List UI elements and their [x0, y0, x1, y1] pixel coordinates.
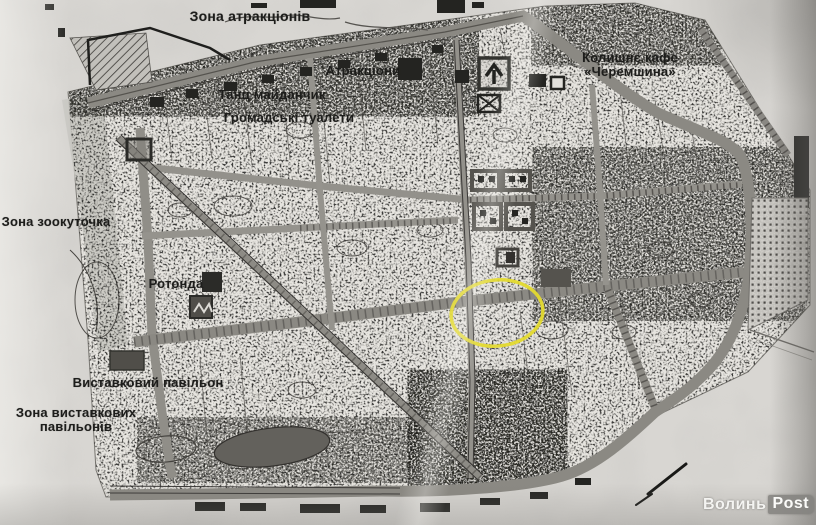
label-rotunda: Ротонда	[149, 277, 204, 291]
label-dance-floor: Танц майданчик	[218, 88, 325, 102]
watermark-text-volyn: Волинь	[703, 496, 768, 514]
label-former-cafe-cheremshyna: Колишнє кафе «Черемшина»	[537, 51, 723, 79]
volynpost-watermark: Волинь Post	[703, 495, 814, 514]
label-public-toilets: Громадські туалети	[224, 111, 354, 125]
watermark-badge-post: Post	[768, 495, 814, 514]
street-buildings-bar	[794, 136, 809, 208]
label-exhibition-pavilion: Виставковий павільон	[73, 376, 224, 390]
junction-structure	[127, 139, 151, 160]
label-zoo-zone: Зона зоокуточка	[2, 215, 111, 229]
label-attractions: Атракціони	[326, 64, 401, 78]
exhibition-pavilion-building	[110, 351, 144, 370]
dark-structure	[541, 269, 571, 287]
attractions-building	[398, 58, 422, 80]
entrance-arrow-icon	[479, 58, 509, 89]
label-exhibition-zone: Зона виставкових павільонів	[16, 406, 136, 434]
label-zone-attractions: Зона атракціонів	[190, 9, 311, 23]
scanned-map-page: Зона атракціонів Атракціони Танц майданч…	[0, 0, 816, 525]
